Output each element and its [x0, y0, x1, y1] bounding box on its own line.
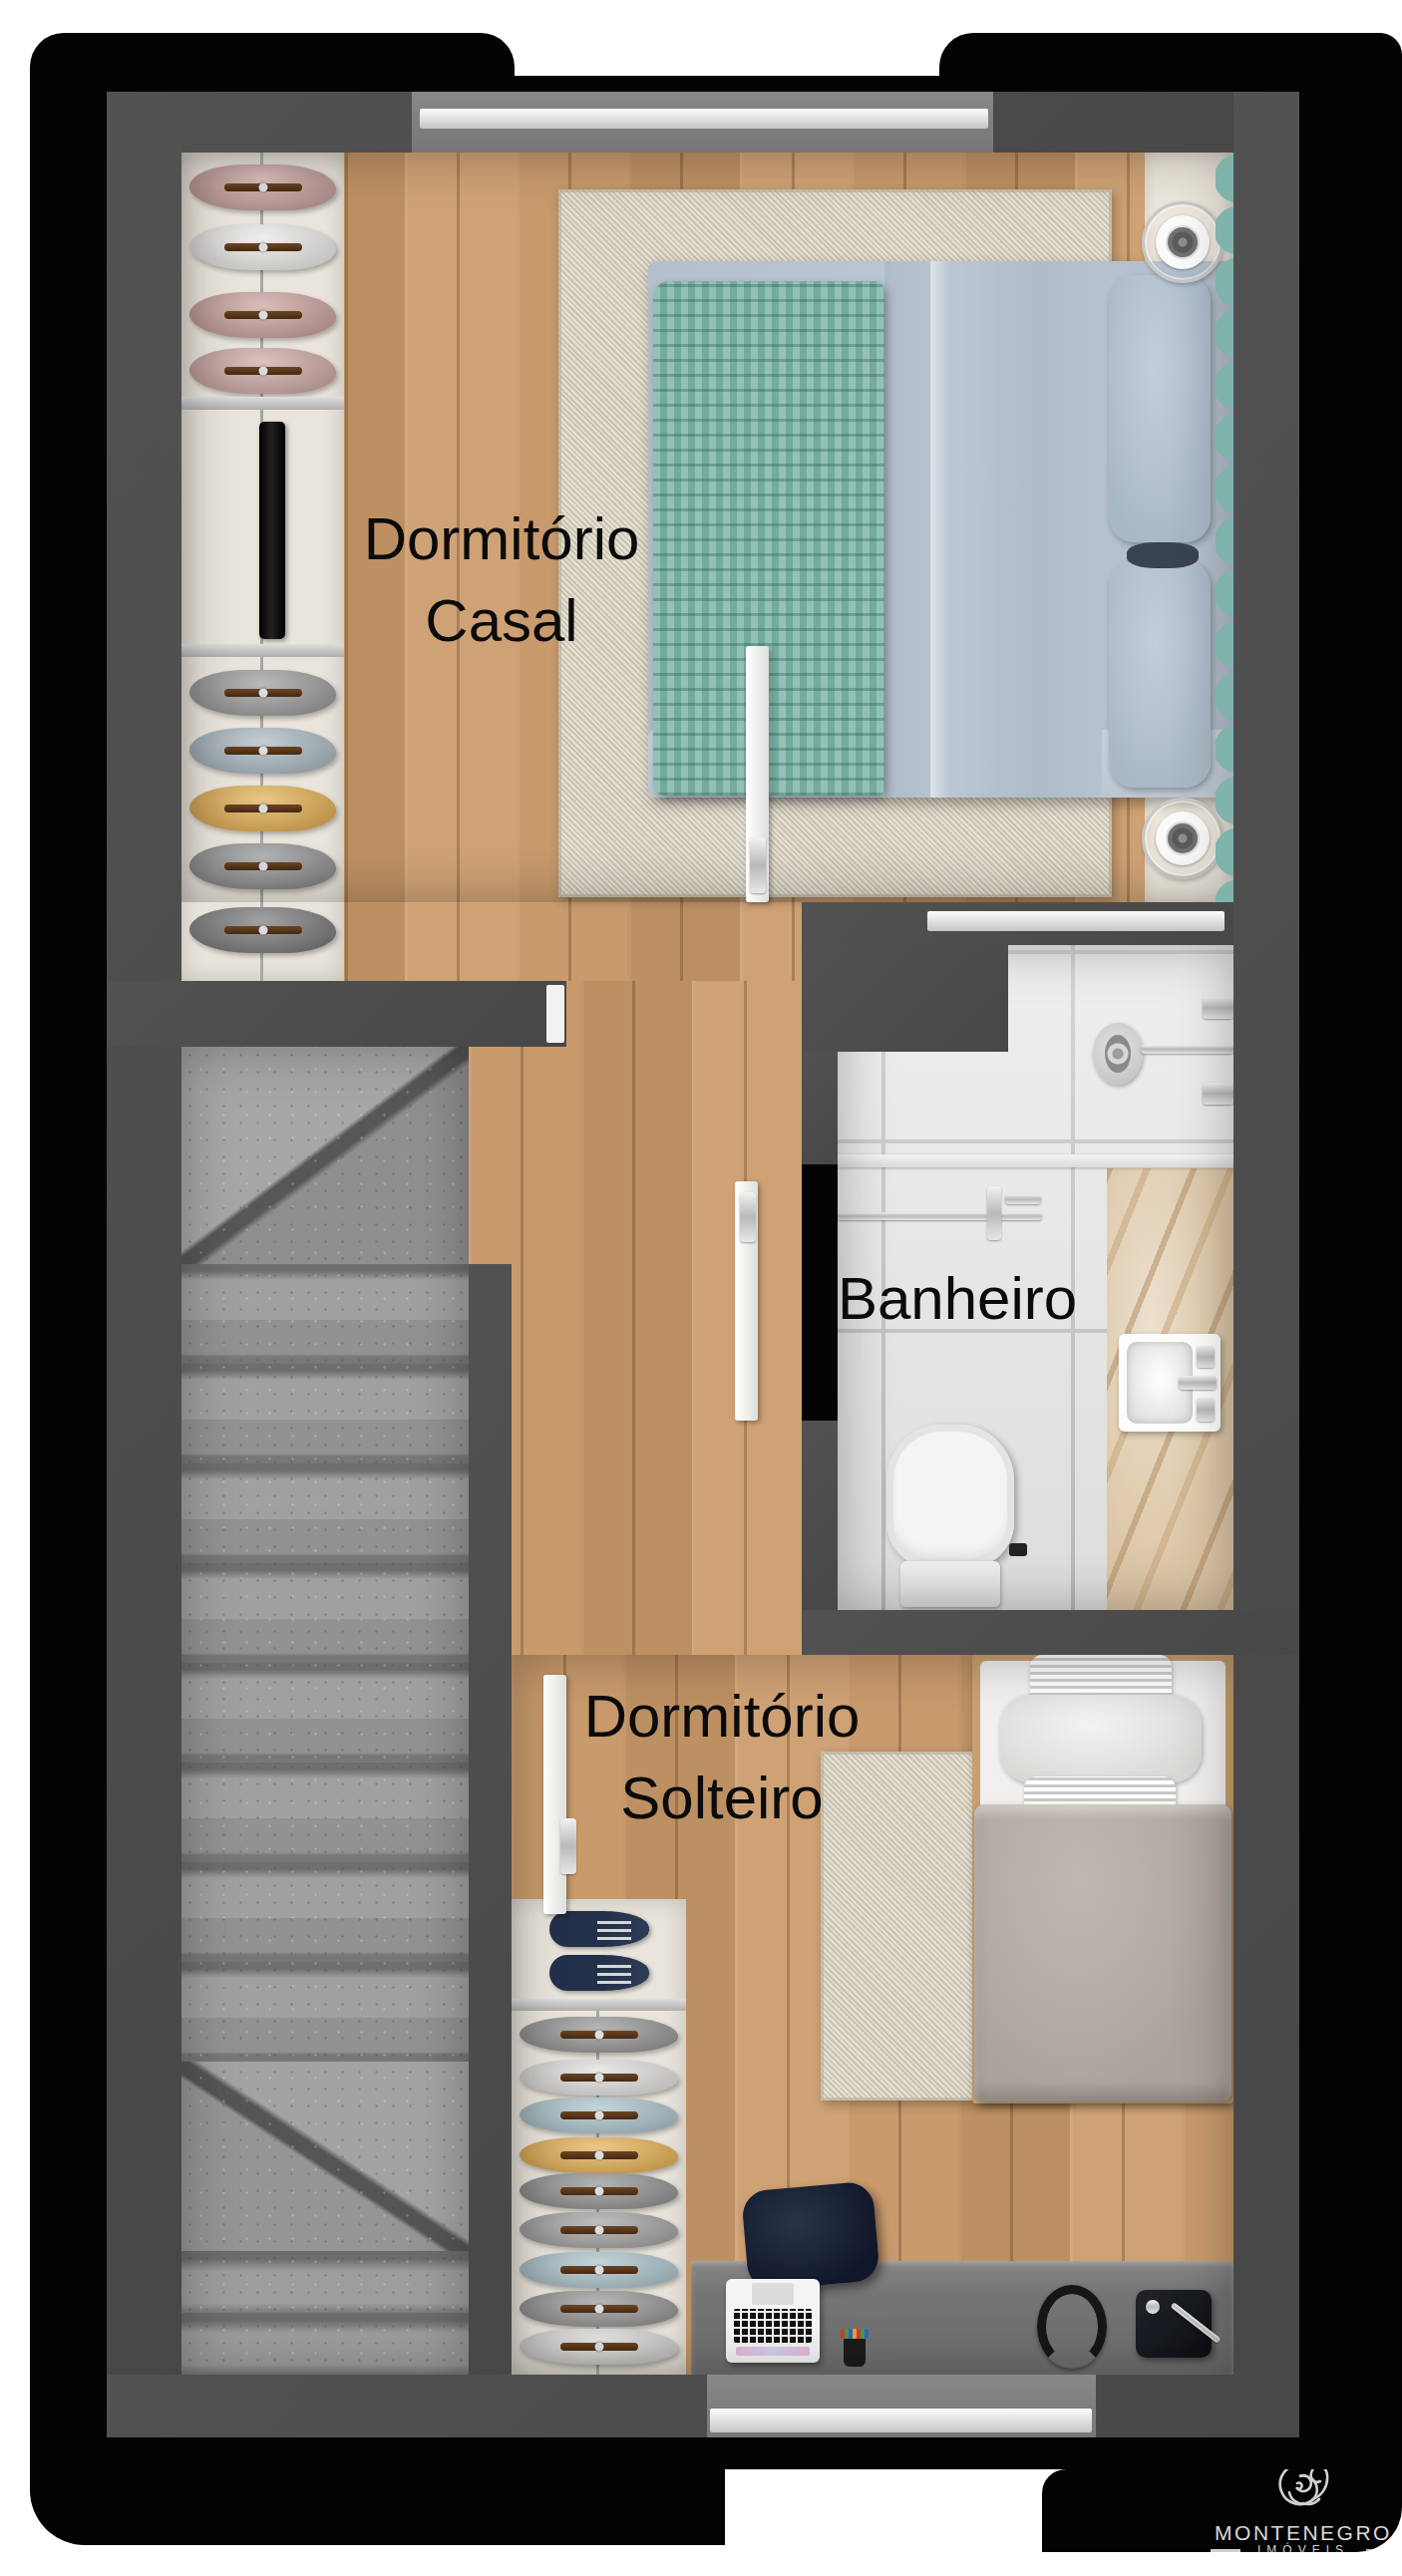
- garment-hanging: [520, 2060, 678, 2095]
- headboard-scallops: [1216, 153, 1233, 902]
- window-top: [420, 109, 988, 129]
- stair-landing-bottom: [181, 2062, 469, 2251]
- shower-valve-upper: [1203, 997, 1233, 1019]
- staircase: [181, 1047, 469, 2375]
- garment-hanging: [189, 728, 336, 774]
- camera-gadget: [1136, 2290, 1212, 2358]
- wardrobe-solteiro: [512, 1899, 686, 2375]
- pillow-top: [1109, 275, 1211, 542]
- label-line: Dormitório: [473, 1676, 971, 1758]
- wall-bathroom-left-lower: [802, 1421, 838, 1610]
- gadget-knob: [1146, 2300, 1160, 2314]
- shower-head-icon: [1093, 1023, 1143, 1085]
- stair-step-low-1: [181, 2251, 469, 2313]
- logo-brand-text: MONTENEGRO: [1144, 2521, 1402, 2545]
- garment-hanging: [520, 2097, 678, 2133]
- shower-glass-partition: [838, 1154, 1233, 1167]
- montenegro-swirl-icon: [1269, 2469, 1335, 2519]
- logo-subtitle-label: IMÓVEIS: [1257, 2543, 1349, 2552]
- garment-hanging: [520, 2329, 678, 2365]
- laptop-keyboard: [734, 2309, 812, 2343]
- garment-hanging: [520, 2252, 678, 2288]
- door-handle-icon: [740, 1192, 756, 1242]
- label-dormitorio-solteiro: Dormitório Solteiro: [473, 1676, 971, 1839]
- towel-bar-icon: [838, 1212, 1042, 1220]
- door-handle-icon: [750, 837, 766, 893]
- garment-hanging: [189, 670, 336, 716]
- wall-bathroom-bottom: [802, 1610, 1299, 1655]
- window-bottom: [710, 2409, 1092, 2432]
- garment-hanging: [520, 2212, 678, 2248]
- wall-bathroom-left-upper: [802, 1052, 838, 1164]
- label-dormitorio-casal: Dormitório Casal: [252, 498, 751, 662]
- toilet-flush-button: [1009, 1543, 1027, 1556]
- shower-valve-lower: [1203, 1083, 1233, 1105]
- stair-steps: [181, 1264, 469, 2062]
- stair-step-low-2: [181, 2313, 469, 2375]
- garment-hanging: [189, 907, 336, 953]
- toilet-tank: [900, 1561, 1000, 1607]
- duvet-fold: [930, 261, 960, 798]
- wall-bottom: [107, 2375, 1299, 2437]
- garment-hanging: [520, 2173, 678, 2209]
- garment-hanging: [520, 2291, 678, 2327]
- shower-arm: [1141, 1045, 1233, 1054]
- single-bed: [972, 1655, 1233, 2103]
- garment-hanging: [520, 2017, 678, 2053]
- label-line: Casal: [252, 580, 751, 662]
- label-line: Solteiro: [473, 1758, 971, 1839]
- pencils: [841, 2329, 869, 2339]
- towel-bar-bracket: [1005, 1194, 1041, 1204]
- laptop-trackpad: [736, 2347, 810, 2356]
- pillow-plain: [1000, 1695, 1202, 1782]
- pencil-cup: [844, 2337, 866, 2367]
- speaker-icon: [1142, 798, 1224, 879]
- faucet-icon: [1197, 1346, 1215, 1368]
- wall-bathroom-corner-block: [802, 945, 1008, 1052]
- floor-plan-page: Dormitório Casal Banheiro Dormitório Sol…: [0, 0, 1402, 2576]
- pillow-gap-accent: [1127, 542, 1199, 568]
- logo-block: MONTENEGRO IMÓVEIS: [1042, 2469, 1402, 2552]
- laptop-screen: [752, 2283, 794, 2305]
- pillow-bottom: [1109, 560, 1211, 788]
- laptop: [726, 2279, 820, 2363]
- sink: [1119, 1334, 1221, 1432]
- backdrop-bottom-left: [30, 2469, 725, 2545]
- garment-hanging: [520, 2137, 678, 2173]
- desk-chair: [741, 2180, 880, 2291]
- single-duvet: [974, 1804, 1231, 2101]
- garment-hanging: [189, 843, 336, 889]
- speaker-icon: [1142, 201, 1224, 283]
- headphones-icon: [1037, 2285, 1107, 2369]
- label-line: Banheiro: [708, 1258, 1207, 1340]
- towel-bar-bracket: [987, 1186, 1001, 1240]
- wardrobe-solteiro-rows: [512, 1899, 686, 2375]
- label-line: Dormitório: [252, 498, 751, 580]
- stair-landing-top: [181, 1047, 469, 1264]
- bed-duvet: [884, 261, 1102, 798]
- toilet: [886, 1425, 1014, 1568]
- wall-left: [107, 92, 181, 2437]
- faucet-spout: [1179, 1376, 1217, 1390]
- wall-right: [1233, 92, 1299, 2437]
- wall-divider-casal: [107, 981, 566, 1047]
- logo-subtitle-text: IMÓVEIS: [1144, 2543, 1402, 2552]
- label-banheiro: Banheiro: [708, 1258, 1207, 1340]
- door-jamb: [546, 985, 564, 1043]
- garment-hanging: [189, 786, 336, 831]
- faucet-handle: [1197, 1398, 1215, 1422]
- bathroom-glass-strip: [927, 911, 1225, 931]
